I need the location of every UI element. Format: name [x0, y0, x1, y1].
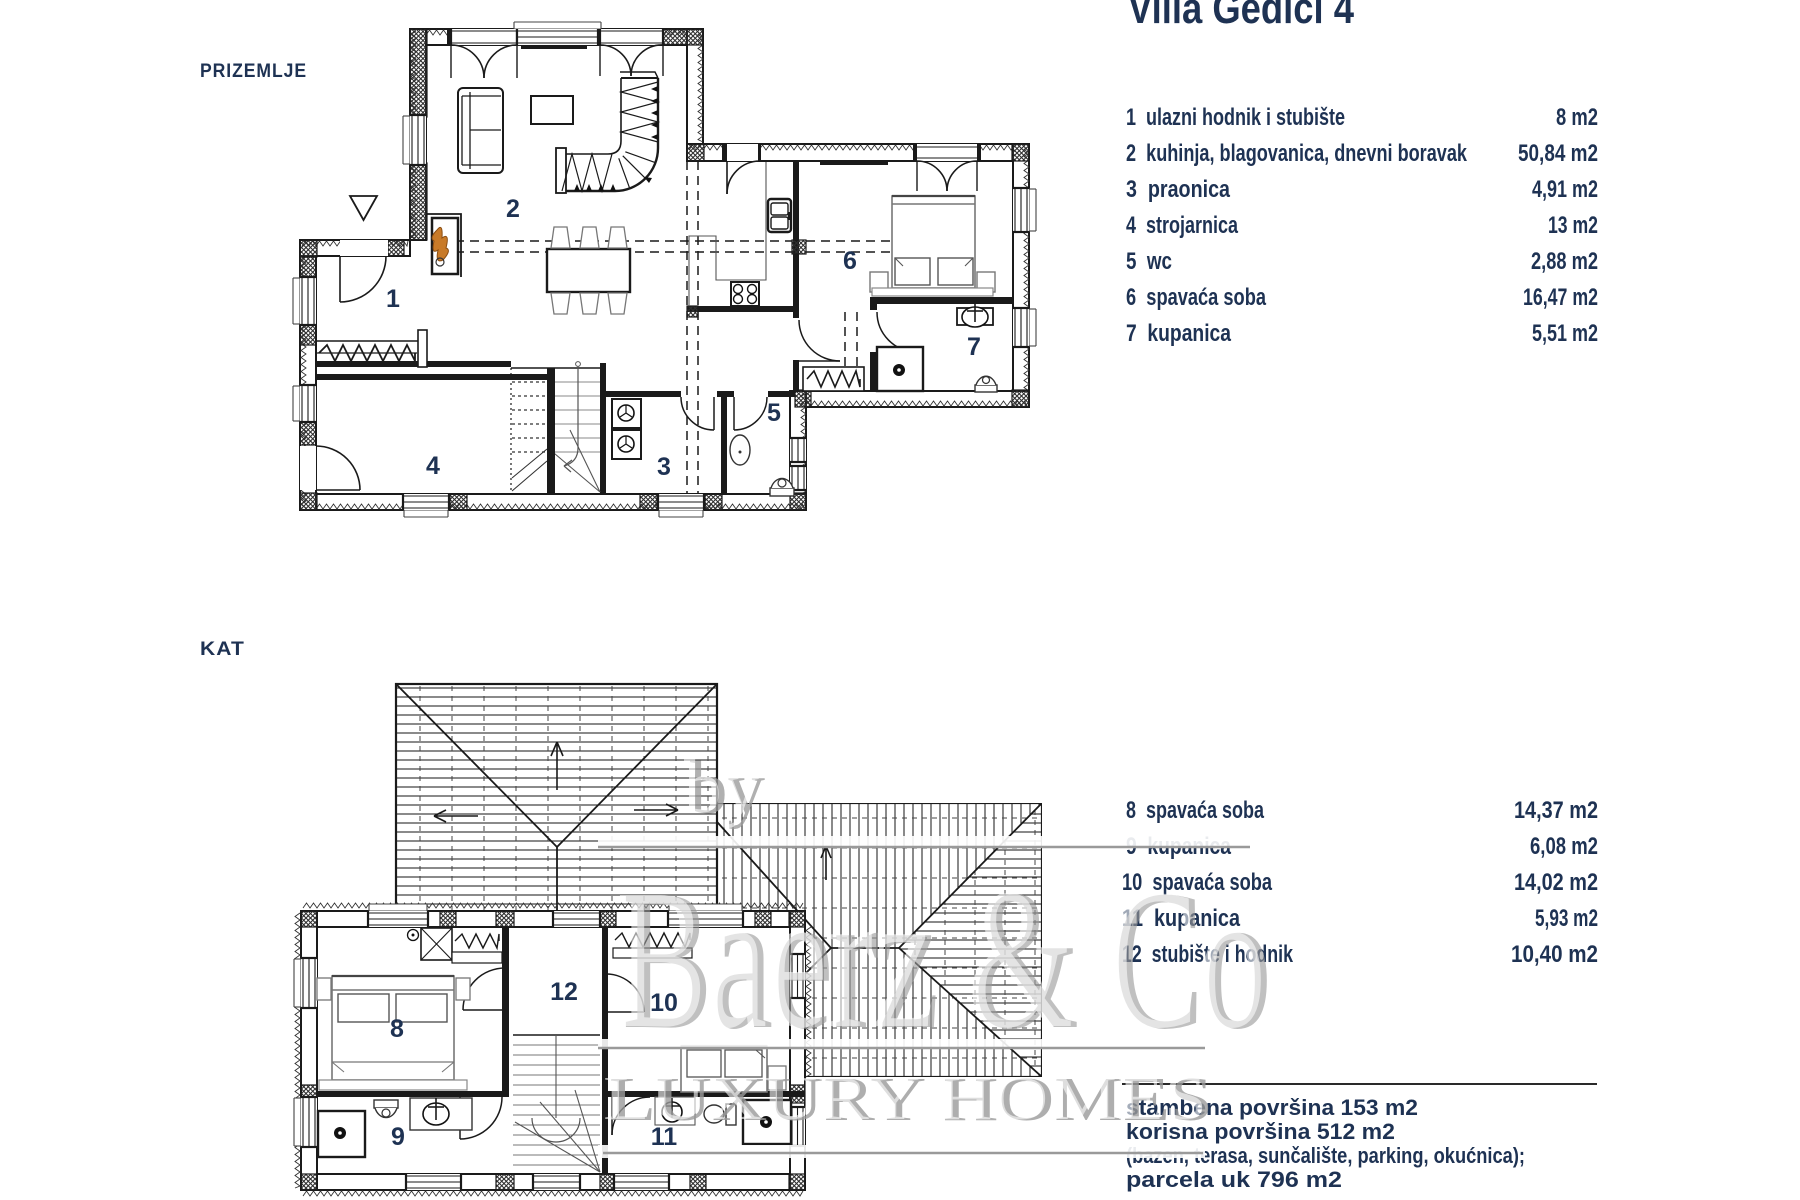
svg-text:1: 1: [386, 285, 400, 313]
svg-text:6,08 m2: 6,08 m2: [1530, 833, 1598, 860]
svg-text:14,02 m2: 14,02 m2: [1514, 869, 1598, 896]
svg-text:LUXURY HOMES: LUXURY HOMES: [603, 1065, 1207, 1133]
svg-text:by: by: [684, 746, 760, 829]
svg-text:4 strojarnica: 4 strojarnica: [1126, 212, 1238, 239]
svg-text:8: 8: [390, 1015, 404, 1043]
svg-text:8 spavaća soba: 8 spavaća soba: [1126, 797, 1264, 824]
svg-text:3: 3: [657, 453, 671, 481]
svg-text:Baerz & Co: Baerz & Co: [616, 849, 1266, 1070]
svg-text:6 spavaća soba: 6 spavaća soba: [1126, 284, 1266, 311]
svg-text:5: 5: [767, 399, 781, 427]
svg-text:12: 12: [550, 978, 578, 1006]
svg-text:5,93 m2: 5,93 m2: [1535, 905, 1598, 932]
svg-text:10,40 m2: 10,40 m2: [1511, 941, 1598, 968]
svg-text:4: 4: [426, 452, 440, 480]
svg-text:1 ulazni hodnik i stubište: 1 ulazni hodnik i stubište: [1126, 104, 1345, 131]
svg-text:KAT: KAT: [200, 639, 245, 660]
svg-text:5 wc: 5 wc: [1126, 248, 1172, 275]
svg-text:parcela uk 796 m2: parcela uk 796 m2: [1126, 1167, 1342, 1192]
svg-text:13 m2: 13 m2: [1548, 212, 1598, 239]
svg-text:2,88 m2: 2,88 m2: [1531, 248, 1598, 275]
svg-text:4,91 m2: 4,91 m2: [1532, 176, 1598, 203]
svg-text:3 praonica: 3 praonica: [1126, 176, 1231, 203]
svg-text:8 m2: 8 m2: [1556, 104, 1598, 131]
svg-text:7 kupanica: 7 kupanica: [1126, 320, 1232, 347]
svg-text:14,37 m2: 14,37 m2: [1514, 797, 1598, 824]
svg-text:9: 9: [391, 1123, 405, 1151]
svg-text:50,84 m2: 50,84 m2: [1518, 140, 1598, 167]
svg-text:6: 6: [843, 247, 857, 275]
svg-text:16,47 m2: 16,47 m2: [1523, 284, 1598, 311]
svg-text:2: 2: [506, 195, 520, 223]
svg-text:5,51 m2: 5,51 m2: [1532, 320, 1598, 347]
svg-text:Villa Gedici 4: Villa Gedici 4: [1128, 0, 1354, 33]
svg-text:PRIZEMLJE: PRIZEMLJE: [200, 61, 307, 82]
svg-text:2 kuhinja, blagovanica, dnevn: 2 kuhinja, blagovanica, dnevni boravak: [1126, 140, 1467, 167]
svg-text:7: 7: [967, 333, 981, 361]
